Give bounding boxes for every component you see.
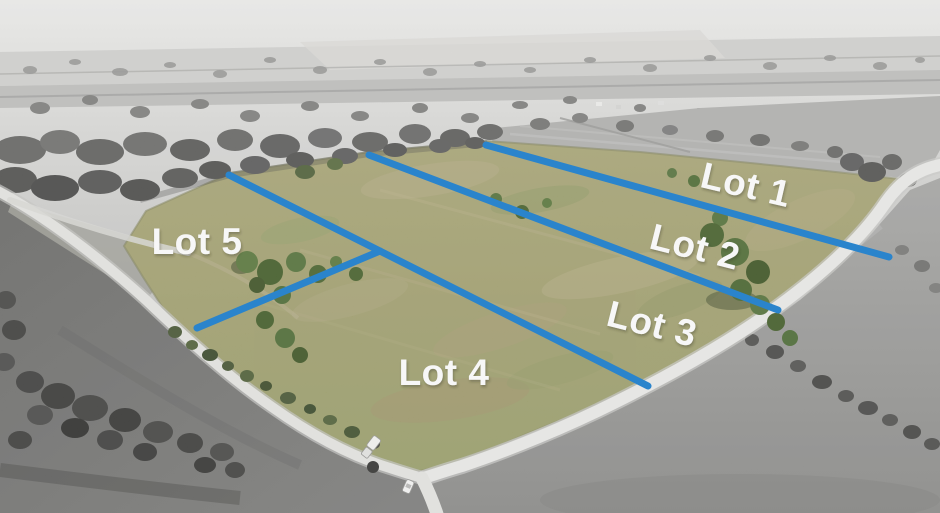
- aerial-photo-svg: Lot 1 Lot 2 Lot 3 Lot 4 Lot 5: [0, 0, 940, 513]
- grain-overlay: [0, 0, 940, 513]
- aerial-lot-photo: Lot 1 Lot 2 Lot 3 Lot 4 Lot 5: [0, 0, 940, 513]
